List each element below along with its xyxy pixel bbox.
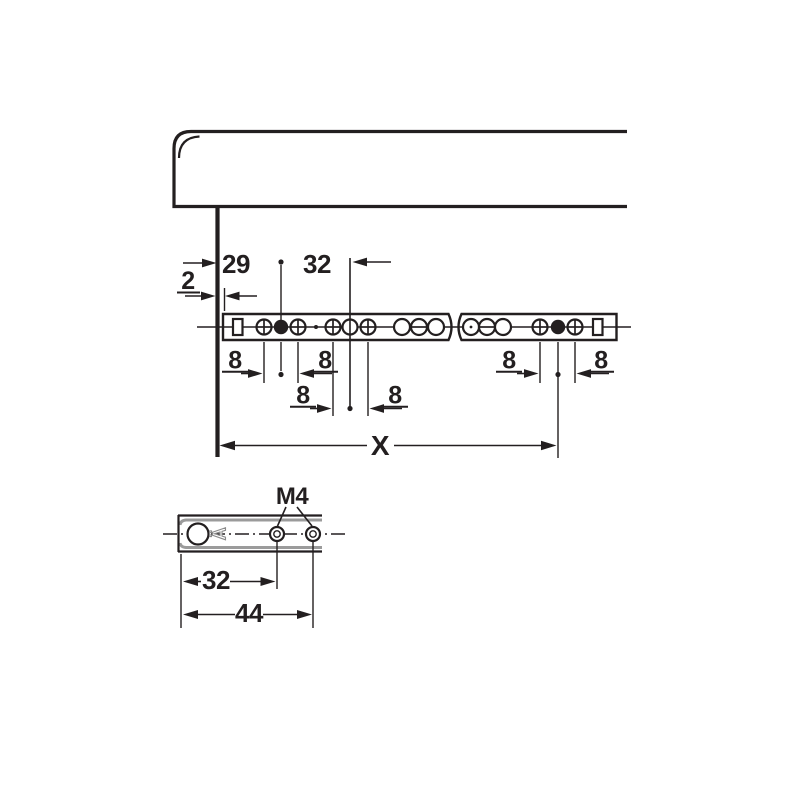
arrowhead-right-icon bbox=[524, 369, 539, 378]
dim-dot bbox=[278, 372, 283, 377]
dim-8-label: 8 bbox=[296, 382, 310, 410]
thread-size-label: M4 bbox=[276, 483, 309, 510]
dim-8-middle-pair: 8 8 bbox=[290, 342, 408, 416]
technical-diagram: 29 32 2 8 8 8 bbox=[0, 0, 800, 800]
arrowhead-right-icon bbox=[297, 610, 312, 619]
cross-hole bbox=[291, 320, 306, 335]
dim-29: 29 bbox=[183, 249, 284, 322]
plain-hole bbox=[394, 319, 410, 335]
dim-8-left-pair: 8 8 bbox=[222, 342, 338, 383]
fixing-hole-filled bbox=[551, 320, 565, 334]
arrowhead-left-icon bbox=[577, 369, 592, 378]
cross-hole bbox=[568, 320, 583, 335]
slotted-hole bbox=[411, 319, 427, 335]
dim-32-label: 32 bbox=[303, 249, 331, 279]
arrowhead-left-icon bbox=[370, 404, 385, 413]
dim-32-top: 32 bbox=[303, 249, 391, 279]
arrowhead-left-icon bbox=[300, 369, 315, 378]
drawing-page: 29 32 2 8 8 8 bbox=[0, 0, 800, 800]
cross-hole bbox=[257, 320, 272, 335]
dim-2-label: 2 bbox=[181, 267, 194, 295]
dim-32-detail-label: 32 bbox=[202, 565, 230, 595]
arrowhead-left-icon bbox=[220, 441, 236, 450]
slotted-hole bbox=[479, 319, 495, 335]
dim-8-label: 8 bbox=[502, 347, 516, 375]
arrowhead-right-icon bbox=[248, 369, 263, 378]
cross-hole bbox=[361, 320, 376, 335]
m4-thread-hole bbox=[306, 527, 320, 541]
dim-x-label: X bbox=[371, 430, 390, 461]
arrowhead-right-icon bbox=[201, 292, 216, 301]
arrowhead-right-icon bbox=[317, 404, 332, 413]
plain-hole bbox=[428, 319, 444, 335]
dim-44-detail: 44 bbox=[183, 598, 312, 628]
dim-32-detail: 32 bbox=[183, 565, 276, 595]
slot-hole bbox=[233, 319, 243, 335]
m4-thread-hole bbox=[270, 527, 284, 541]
cross-hole bbox=[533, 320, 548, 335]
dim-x: X bbox=[220, 430, 557, 461]
rail-profile-detail-view: Ä M4 32 44 bbox=[163, 483, 347, 628]
arrowhead-left-icon bbox=[353, 258, 368, 267]
plain-hole bbox=[463, 319, 479, 335]
arrowhead-right-icon bbox=[261, 577, 276, 586]
cross-hole bbox=[326, 320, 341, 335]
slot-hole bbox=[593, 319, 603, 335]
centerline-dot bbox=[314, 325, 318, 329]
hafele-stamp-icon: Ä bbox=[210, 527, 230, 540]
arrowhead-right-icon bbox=[202, 259, 217, 268]
dim-8-label: 8 bbox=[228, 347, 242, 375]
arrowhead-left-icon bbox=[225, 292, 240, 301]
arrowhead-right-icon bbox=[541, 441, 557, 450]
dim-8-right-pair: 8 8 bbox=[496, 342, 614, 458]
dim-8-label: 8 bbox=[388, 382, 402, 410]
cabinet-panel-inner-edge bbox=[179, 137, 200, 159]
dim-dot bbox=[278, 259, 283, 264]
dim-8-label: 8 bbox=[318, 347, 332, 375]
cabinet-panel-outline bbox=[174, 132, 627, 207]
dim-29-label: 29 bbox=[222, 249, 250, 279]
arrowhead-left-icon bbox=[183, 577, 198, 586]
arrowhead-left-icon bbox=[183, 610, 198, 619]
cabinet-panel bbox=[174, 132, 627, 207]
front-fixing-hole bbox=[188, 524, 209, 545]
plain-hole bbox=[495, 319, 511, 335]
dim-8-label: 8 bbox=[594, 347, 608, 375]
dim-dot bbox=[555, 372, 560, 377]
dim-44-detail-label: 44 bbox=[235, 598, 264, 628]
